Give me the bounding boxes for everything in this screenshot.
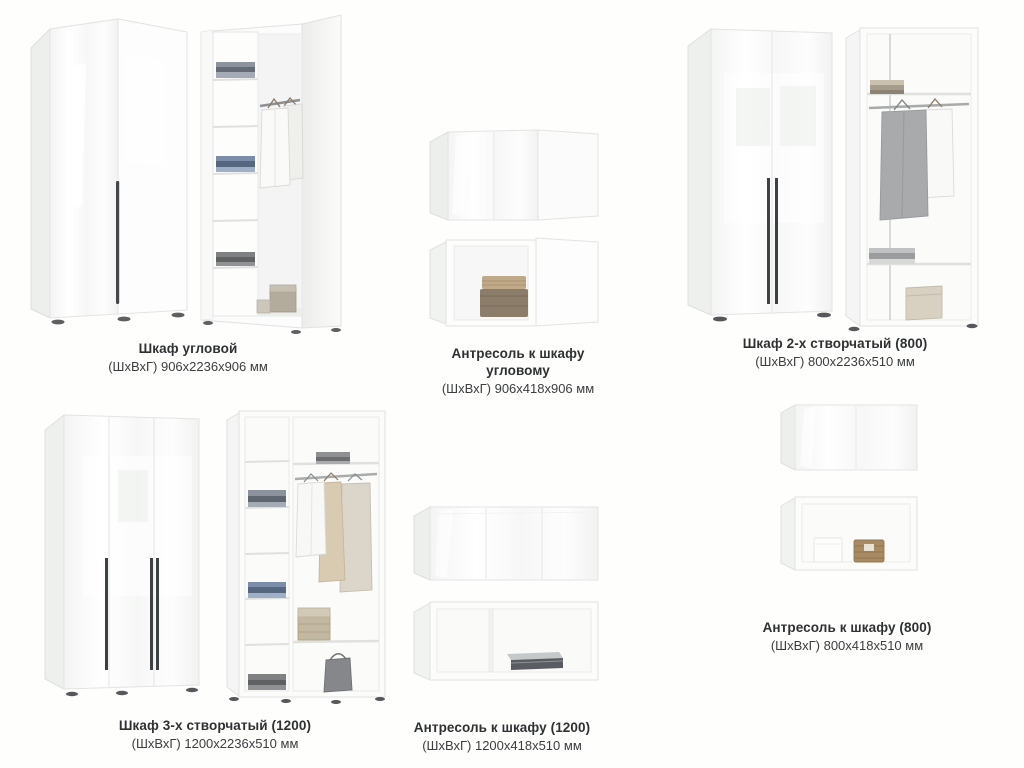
product-dimensions: (ШхВхГ) 906х418х906 мм [420,380,616,398]
product-dimensions: (ШхВхГ) 906х2236х906 мм [18,358,358,376]
mezzanine-1200-closed-image [411,502,601,586]
product-dimensions: (ШхВхГ) 800х2236х510 мм [672,353,998,371]
product-caption: Шкаф 2-х створчатый (800) (ШхВхГ) 800х22… [672,336,998,370]
wardrobe-3-door-open-image [224,402,392,706]
product-dimensions: (ШхВхГ) 1200х418х510 мм [397,737,607,755]
product-mezzanine-1200: Антресоль к шкафу (1200) (ШхВхГ) 1200х41… [397,492,607,756]
mezzanine-corner-open-image [426,234,602,332]
corner-wardrobe-open-image [196,10,346,340]
product-name: Шкаф угловой [18,341,358,358]
product-mezzanine-corner: Антресоль к шкафу угловому (ШхВхГ) 906х4… [420,120,616,378]
wardrobe-2-door-closed-image [684,18,836,334]
product-mezzanine-800: Антресоль к шкафу (800) (ШхВхГ) 800х418х… [762,392,932,654]
corner-wardrobe-closed-image [26,16,192,334]
mezzanine-corner-closed-image [426,126,602,228]
product-caption: Антресоль к шкафу (800) (ШхВхГ) 800х418х… [762,620,932,654]
product-caption: Шкаф 3-х створчатый (1200) (ШхВхГ) 1200х… [28,718,402,752]
product-name: Шкаф 2-х створчатый (800) [672,336,998,353]
product-wardrobe-2-door: Шкаф 2-х створчатый (800) (ШхВхГ) 800х22… [672,8,998,380]
product-dimensions: (ШхВхГ) 1200х2236х510 мм [28,735,402,753]
catalog-page: Шкаф угловой (ШхВхГ) 906х2236х906 мм [0,0,1024,768]
product-name: Антресоль к шкафу угловому [420,346,616,380]
wardrobe-3-door-closed-image [42,406,202,706]
product-caption: Антресоль к шкафу угловому (ШхВхГ) 906х4… [420,346,616,397]
product-name: Антресоль к шкафу (800) [762,620,932,637]
mezzanine-1200-open-image [411,596,601,686]
product-dimensions: (ШхВхГ) 800х418х510 мм [762,637,932,655]
mezzanine-800-closed-image [778,400,920,476]
product-corner-wardrobe: Шкаф угловой (ШхВхГ) 906х2236х906 мм [18,8,358,380]
wardrobe-2-door-open-image [842,20,988,334]
product-name: Антресоль к шкафу (1200) [397,720,607,737]
product-caption: Антресоль к шкафу (1200) (ШхВхГ) 1200х41… [397,720,607,754]
product-name: Шкаф 3-х створчатый (1200) [28,718,402,735]
product-caption: Шкаф угловой (ШхВхГ) 906х2236х906 мм [18,341,358,375]
mezzanine-800-open-image [778,492,920,576]
product-wardrobe-3-door: Шкаф 3-х створчатый (1200) (ШхВхГ) 1200х… [28,392,402,758]
